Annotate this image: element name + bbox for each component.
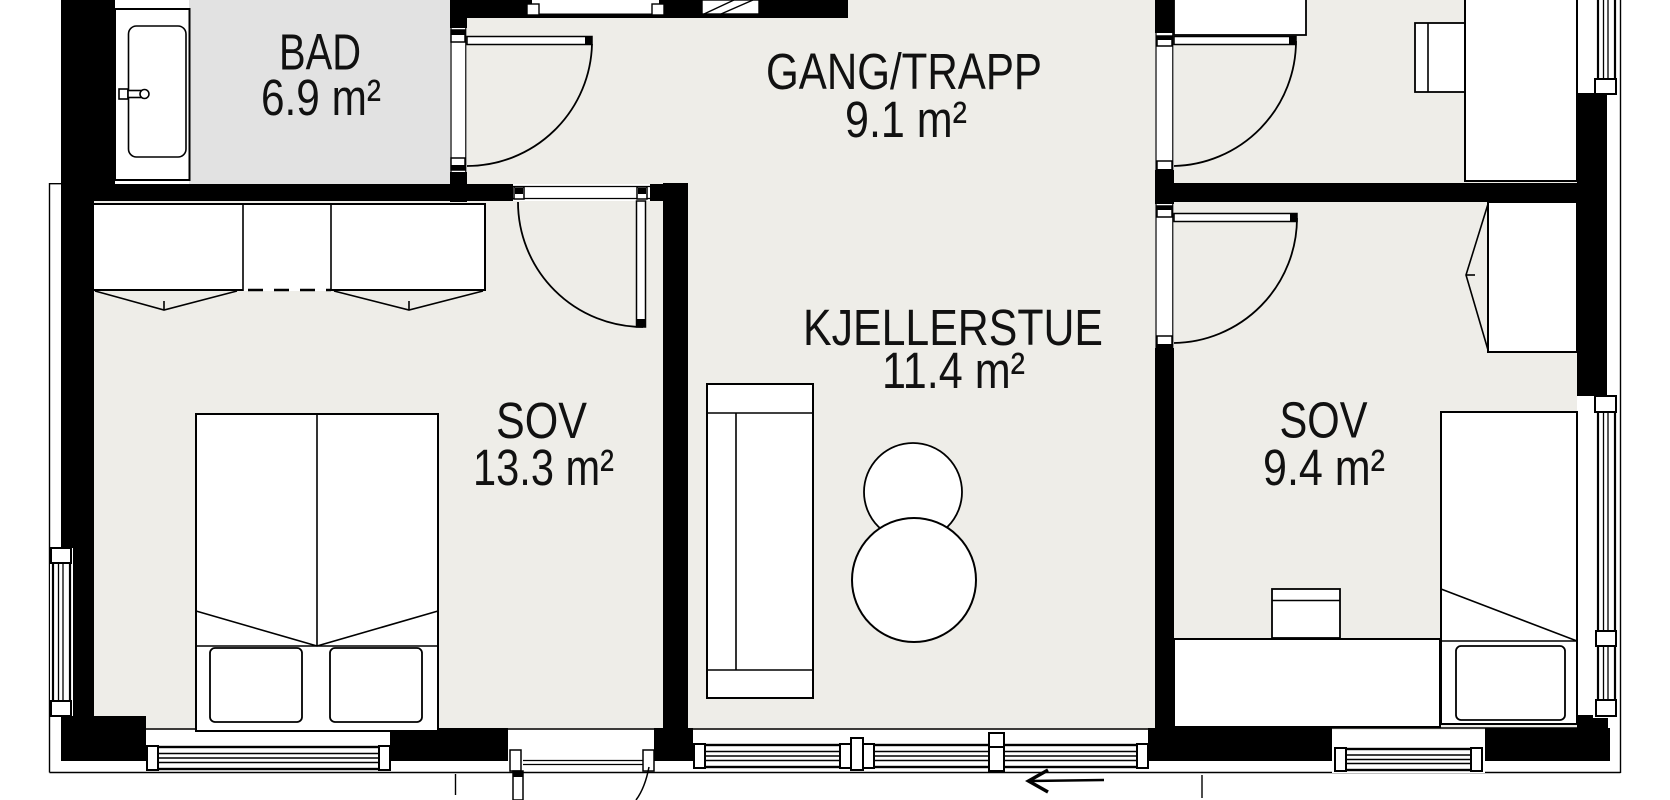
svg-text:6.9 m²: 6.9 m² xyxy=(261,69,381,126)
svg-text:9.1 m²: 9.1 m² xyxy=(845,91,967,148)
svg-text:13.3 m²: 13.3 m² xyxy=(473,439,614,496)
svg-text:11.4 m²: 11.4 m² xyxy=(882,342,1025,399)
svg-text:9.4 m²: 9.4 m² xyxy=(1263,439,1385,496)
